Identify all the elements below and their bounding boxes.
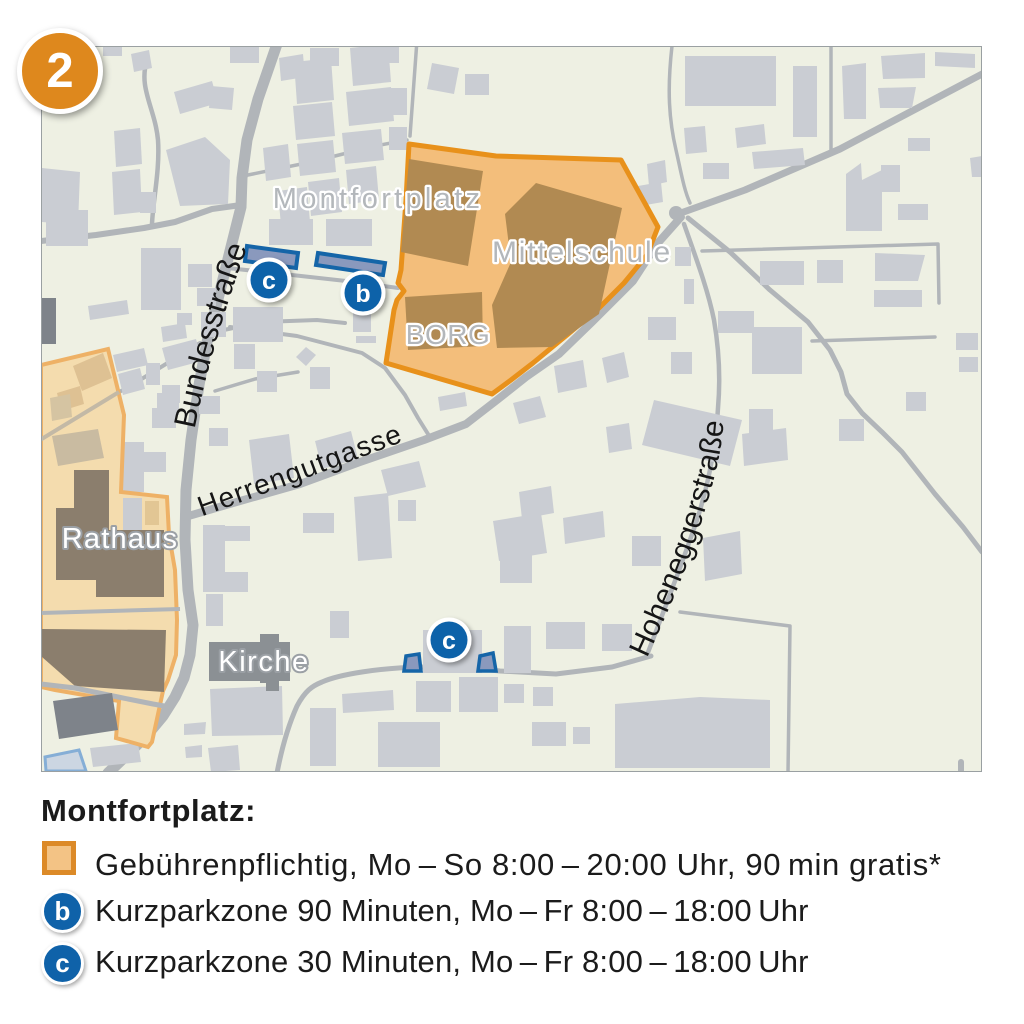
svg-text:b: b (355, 280, 370, 308)
svg-text:Montfortplatz: Montfortplatz (273, 183, 484, 215)
svg-text:c: c (262, 267, 276, 295)
svg-text:Kirche: Kirche (218, 646, 309, 678)
svg-text:BORG: BORG (406, 319, 490, 350)
svg-text:c: c (442, 627, 456, 655)
svg-text:Mittelschule: Mittelschule (492, 236, 672, 269)
svg-text:Rathaus: Rathaus (62, 523, 178, 555)
